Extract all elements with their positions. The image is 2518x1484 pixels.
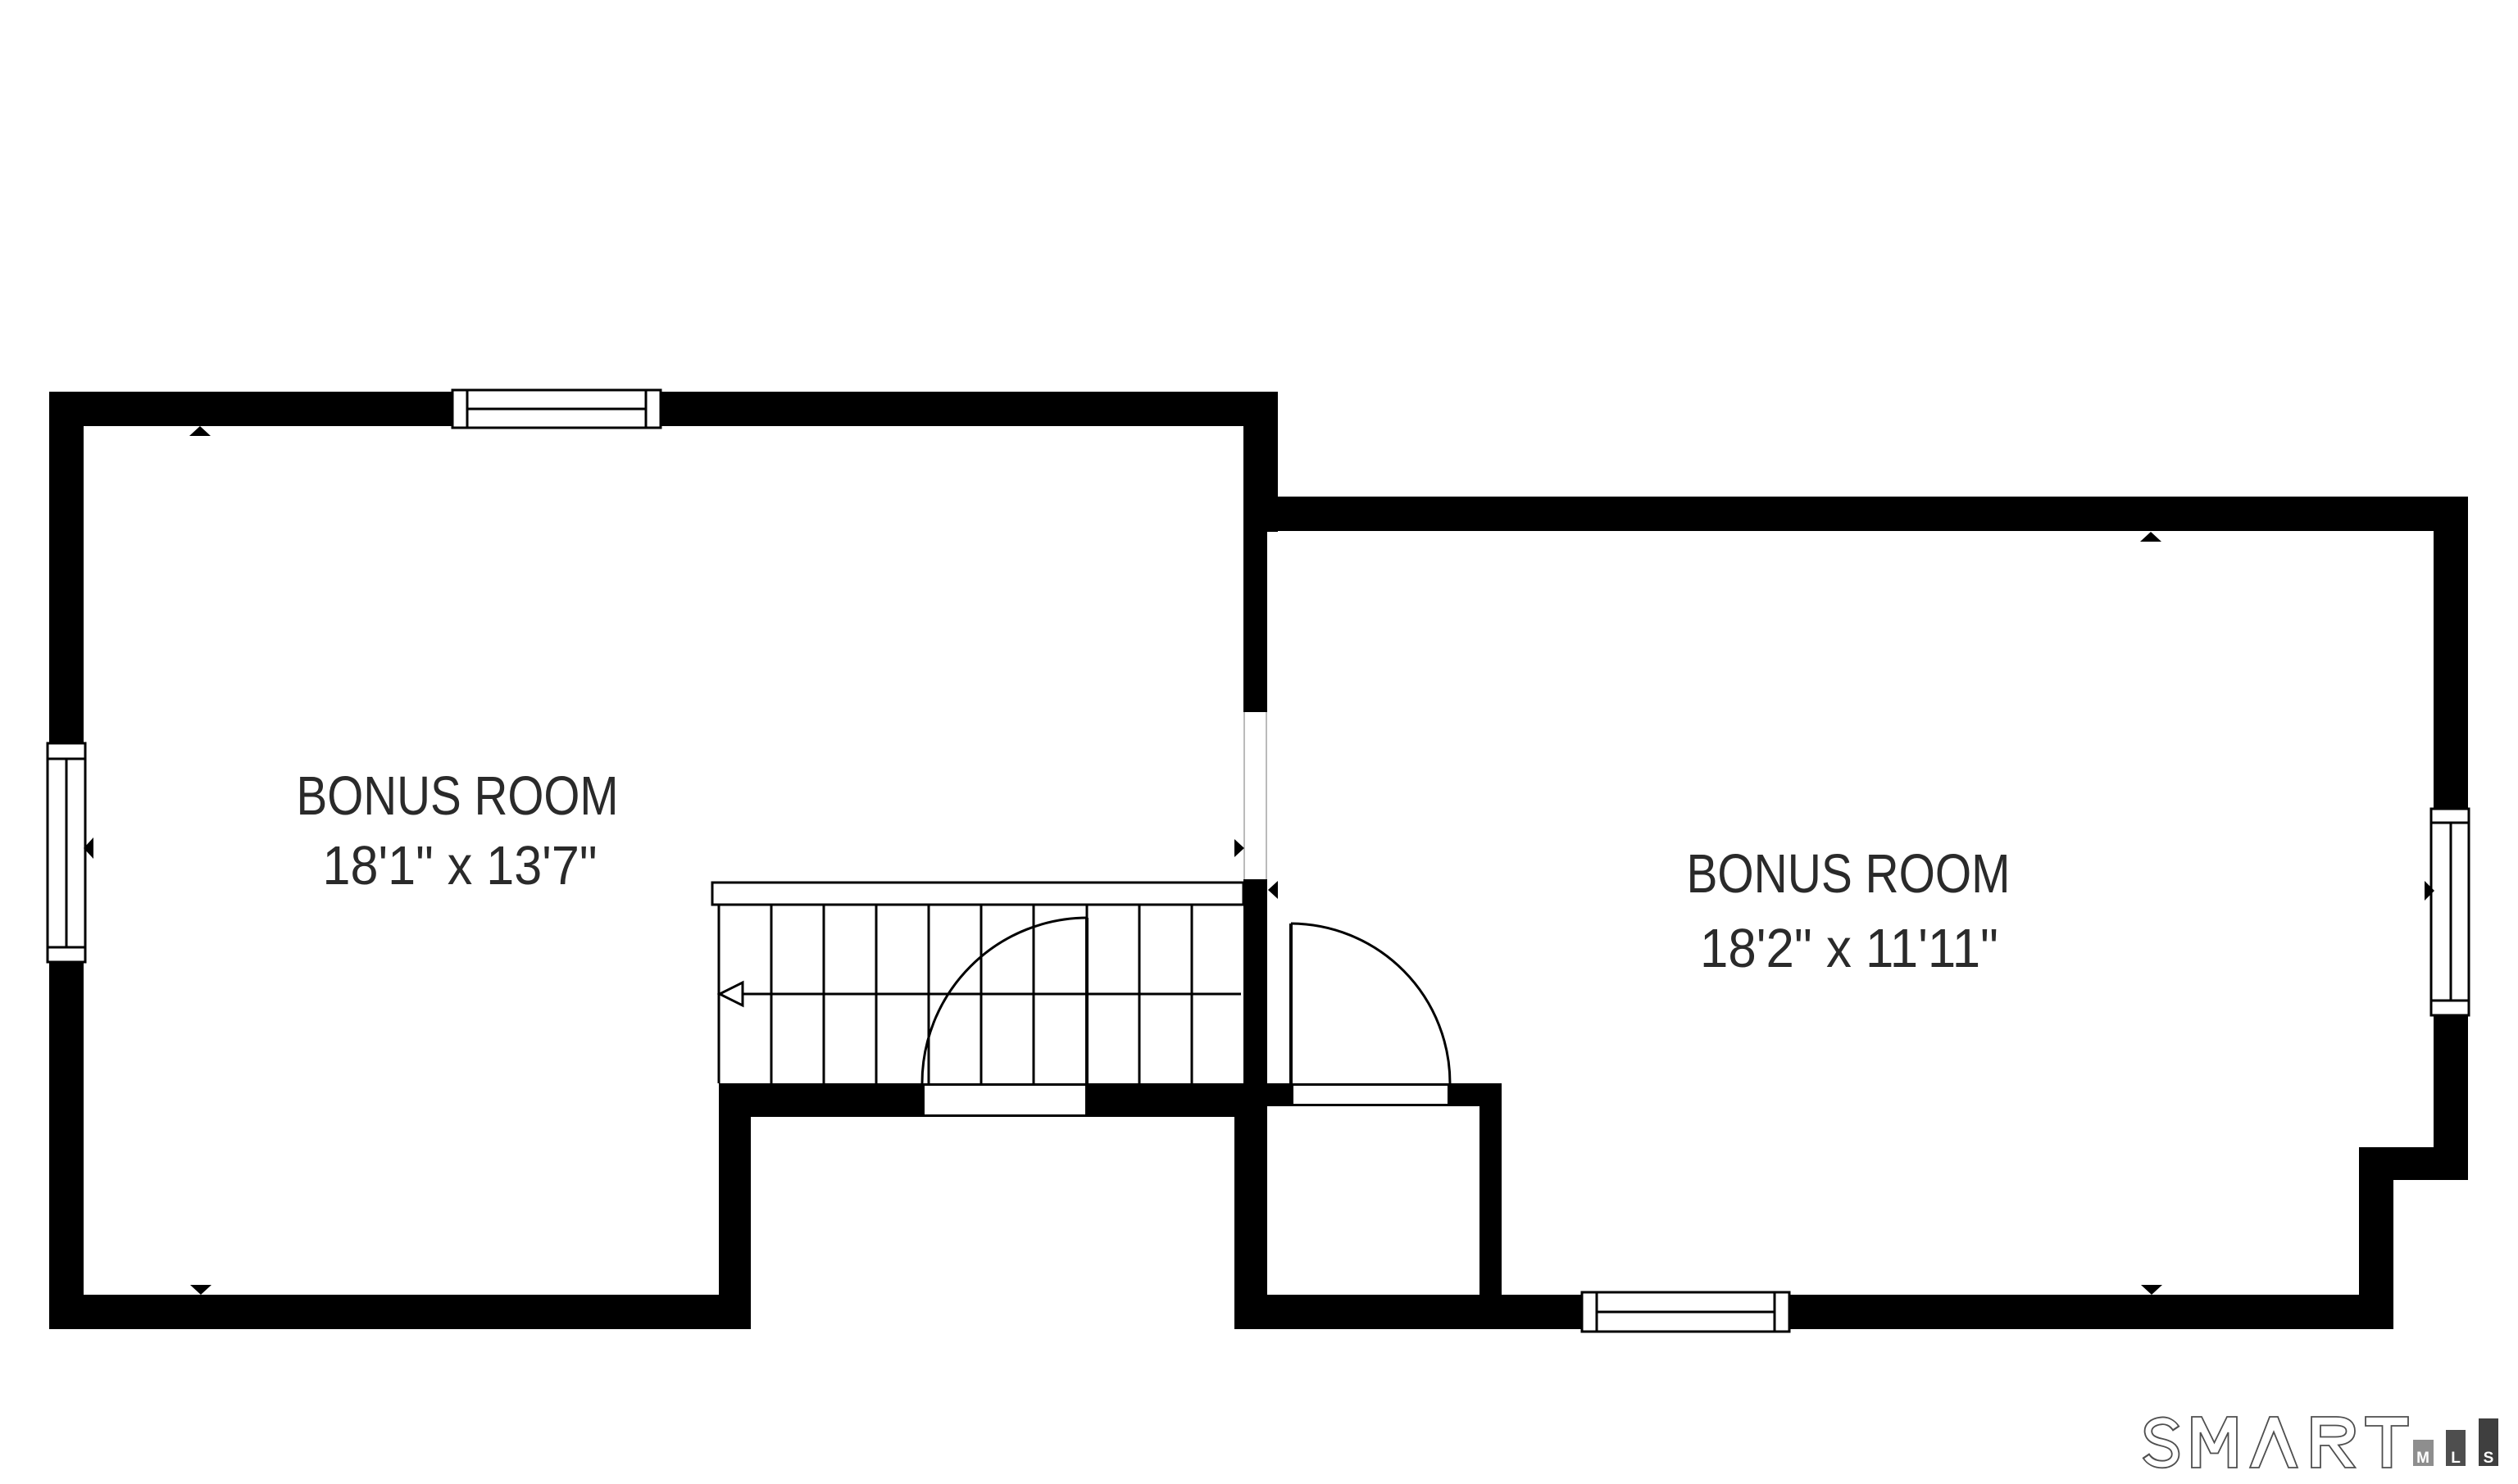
svg-text:18'2" x 11'11": 18'2" x 11'11" (1700, 918, 1998, 979)
svg-text:M: M (2416, 1450, 2429, 1467)
svg-text:L: L (2451, 1450, 2461, 1467)
svg-text:BONUS ROOM: BONUS ROOM (297, 765, 619, 827)
svg-text:BONUS ROOM: BONUS ROOM (1687, 843, 2011, 905)
svg-text:18'1" x 13'7": 18'1" x 13'7" (323, 835, 598, 896)
svg-text:S: S (2484, 1450, 2494, 1467)
